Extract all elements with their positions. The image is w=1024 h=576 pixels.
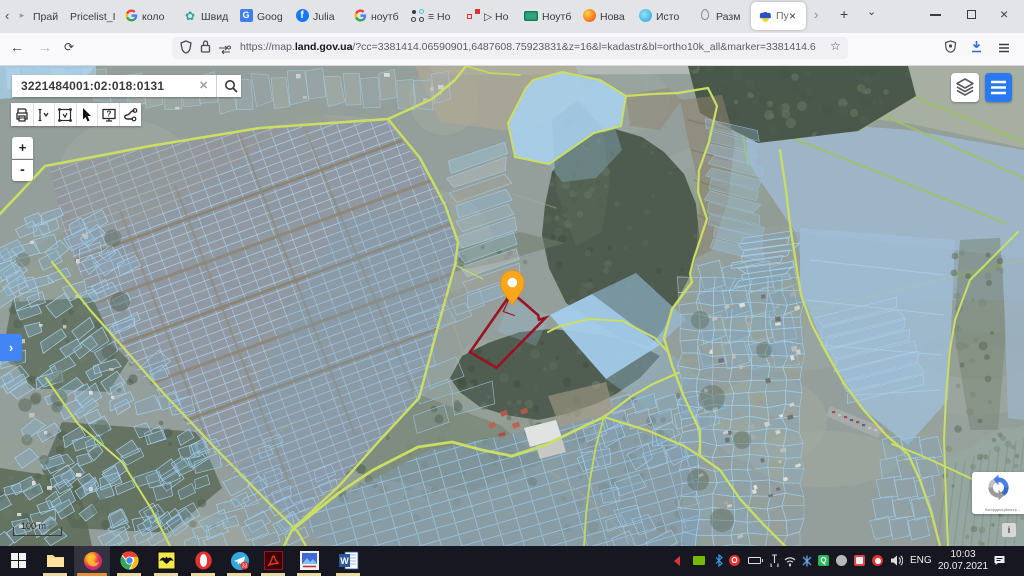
svg-text:33: 33 <box>242 563 248 569</box>
svg-text:W: W <box>340 556 349 566</box>
svg-text:?: ? <box>106 109 111 118</box>
